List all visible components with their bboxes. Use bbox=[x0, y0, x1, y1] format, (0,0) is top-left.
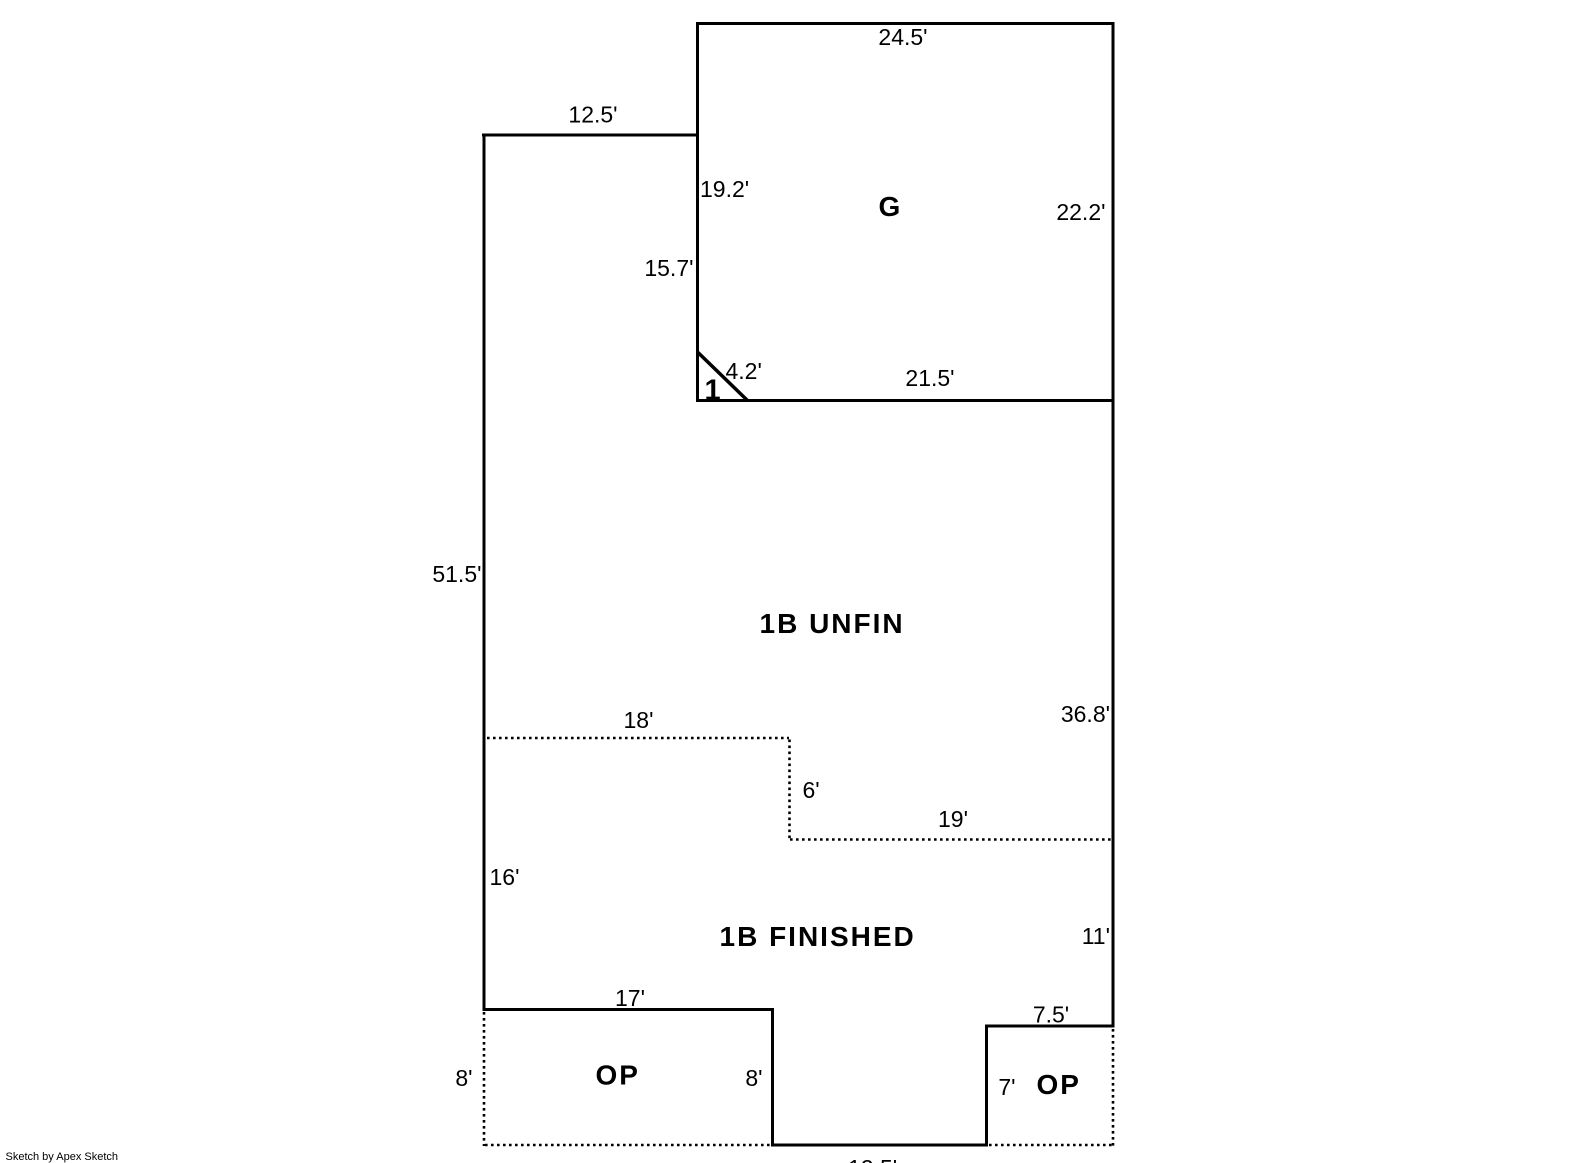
svg-text:22.2': 22.2' bbox=[1056, 199, 1105, 225]
svg-text:4.2': 4.2' bbox=[726, 358, 762, 384]
svg-text:7.5': 7.5' bbox=[1033, 1002, 1069, 1028]
svg-text:24.5': 24.5' bbox=[878, 24, 927, 50]
svg-text:12.5': 12.5' bbox=[568, 102, 617, 128]
svg-text:21.5': 21.5' bbox=[905, 365, 954, 391]
svg-text:1B UNFIN: 1B UNFIN bbox=[760, 608, 905, 639]
svg-text:19.2': 19.2' bbox=[700, 176, 749, 202]
svg-text:8': 8' bbox=[745, 1065, 762, 1091]
svg-text:16': 16' bbox=[490, 864, 520, 890]
svg-text:36.8': 36.8' bbox=[1061, 701, 1110, 727]
svg-text:G: G bbox=[879, 191, 903, 222]
svg-text:OP: OP bbox=[596, 1060, 640, 1091]
svg-text:Sketch by Apex Sketch: Sketch by Apex Sketch bbox=[6, 1151, 119, 1163]
svg-text:15.7': 15.7' bbox=[644, 255, 693, 281]
svg-text:17': 17' bbox=[615, 985, 645, 1011]
svg-text:51.5': 51.5' bbox=[432, 561, 481, 587]
svg-text:18': 18' bbox=[624, 707, 654, 733]
svg-text:7': 7' bbox=[998, 1074, 1015, 1100]
svg-text:1B FINISHED: 1B FINISHED bbox=[720, 921, 916, 952]
svg-text:6': 6' bbox=[803, 777, 820, 803]
svg-text:12.5': 12.5' bbox=[848, 1155, 897, 1163]
svg-text:19': 19' bbox=[938, 806, 968, 832]
svg-text:8': 8' bbox=[455, 1065, 472, 1091]
svg-text:11': 11' bbox=[1082, 923, 1110, 949]
svg-text:1: 1 bbox=[705, 375, 723, 407]
svg-text:OP: OP bbox=[1037, 1069, 1081, 1100]
